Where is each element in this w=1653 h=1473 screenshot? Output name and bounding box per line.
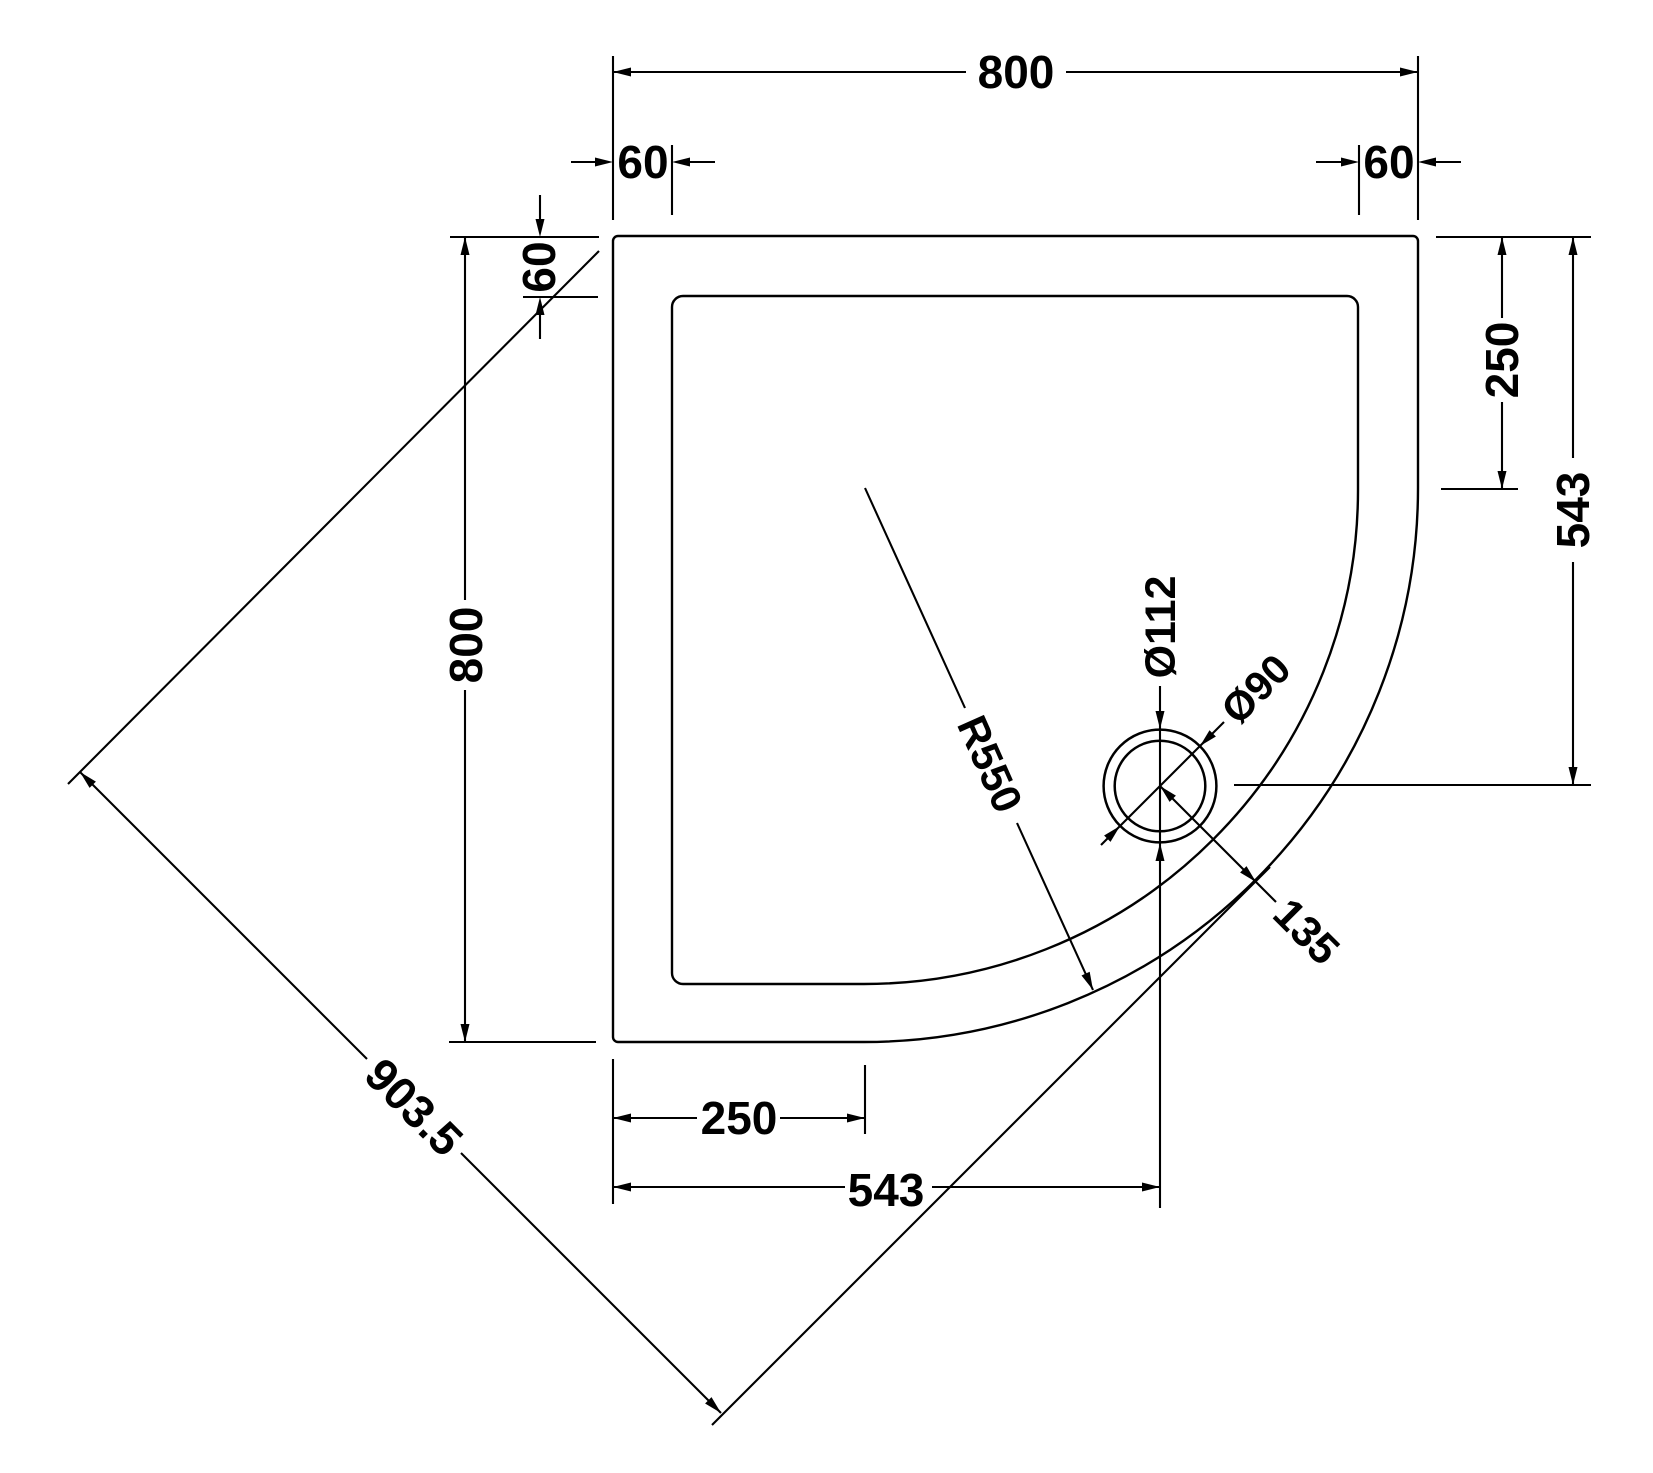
svg-text:135: 135 — [1264, 890, 1349, 975]
svg-text:Ø90: Ø90 — [1212, 645, 1299, 732]
svg-text:60: 60 — [513, 241, 565, 292]
svg-text:R550: R550 — [948, 709, 1032, 820]
svg-text:543: 543 — [848, 1164, 925, 1216]
svg-text:Ø112: Ø112 — [1137, 576, 1185, 679]
svg-text:250: 250 — [1476, 322, 1528, 399]
svg-text:250: 250 — [701, 1092, 778, 1144]
svg-text:800: 800 — [978, 46, 1055, 98]
svg-text:800: 800 — [440, 607, 492, 684]
svg-text:903.5: 903.5 — [355, 1048, 473, 1166]
svg-text:60: 60 — [617, 136, 668, 188]
svg-text:543: 543 — [1547, 472, 1599, 549]
svg-text:60: 60 — [1363, 136, 1414, 188]
